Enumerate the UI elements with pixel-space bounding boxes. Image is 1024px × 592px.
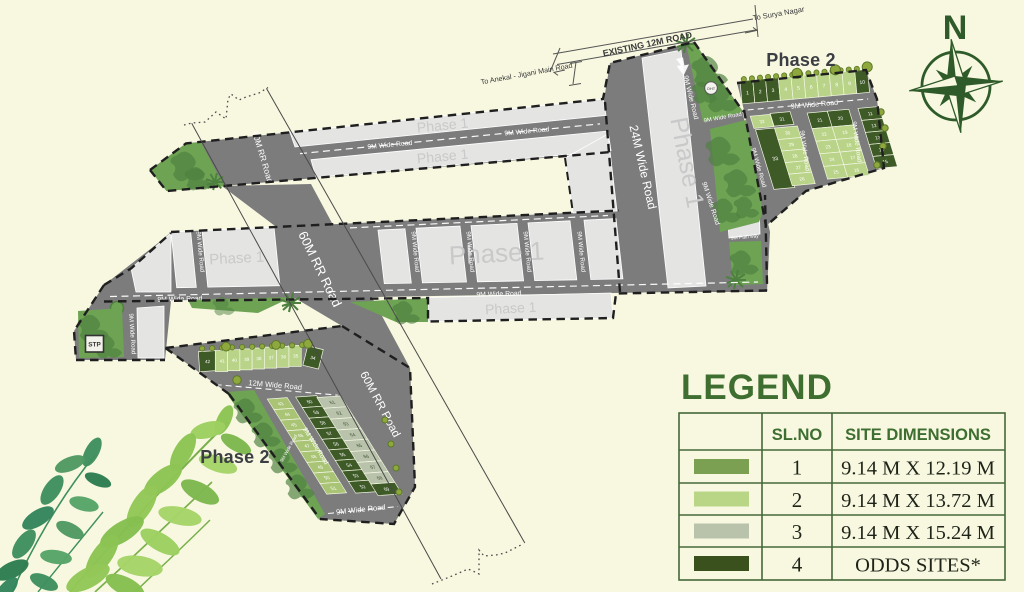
svg-text:38: 38 — [256, 356, 262, 361]
svg-text:Phase 1: Phase 1 — [485, 299, 537, 318]
svg-text:OHT: OHT — [707, 86, 716, 91]
svg-text:36: 36 — [281, 354, 287, 359]
svg-text:2: 2 — [792, 488, 803, 512]
svg-text:40: 40 — [232, 358, 238, 363]
svg-text:N: N — [943, 9, 968, 47]
svg-text:37: 37 — [269, 355, 275, 360]
svg-text:35: 35 — [293, 353, 299, 358]
svg-text:4: 4 — [792, 553, 803, 577]
svg-text:42: 42 — [205, 359, 211, 364]
svg-text:ODDS SITES*: ODDS SITES* — [855, 555, 981, 577]
svg-text:41: 41 — [219, 358, 225, 363]
svg-text:39: 39 — [244, 357, 250, 362]
svg-text:3: 3 — [792, 520, 803, 544]
svg-text:Phase 2: Phase 2 — [766, 50, 835, 70]
svg-text:Phase 2: Phase 2 — [200, 447, 269, 467]
svg-text:9.14 M X 12.19 M: 9.14 M X 12.19 M — [841, 458, 995, 480]
svg-text:9.14 M X 15.24 M: 9.14 M X 15.24 M — [841, 522, 995, 544]
svg-text:9.14 M X 13.72 M: 9.14 M X 13.72 M — [841, 490, 995, 512]
svg-text:Phase 1: Phase 1 — [209, 249, 265, 269]
svg-text:SITE DIMENSIONS: SITE DIMENSIONS — [845, 426, 991, 444]
svg-text:LEGEND: LEGEND — [681, 368, 833, 407]
svg-text:STP: STP — [88, 342, 101, 349]
svg-text:SL.NO: SL.NO — [772, 426, 823, 444]
svg-text:10: 10 — [859, 80, 865, 86]
svg-text:1: 1 — [792, 456, 803, 480]
